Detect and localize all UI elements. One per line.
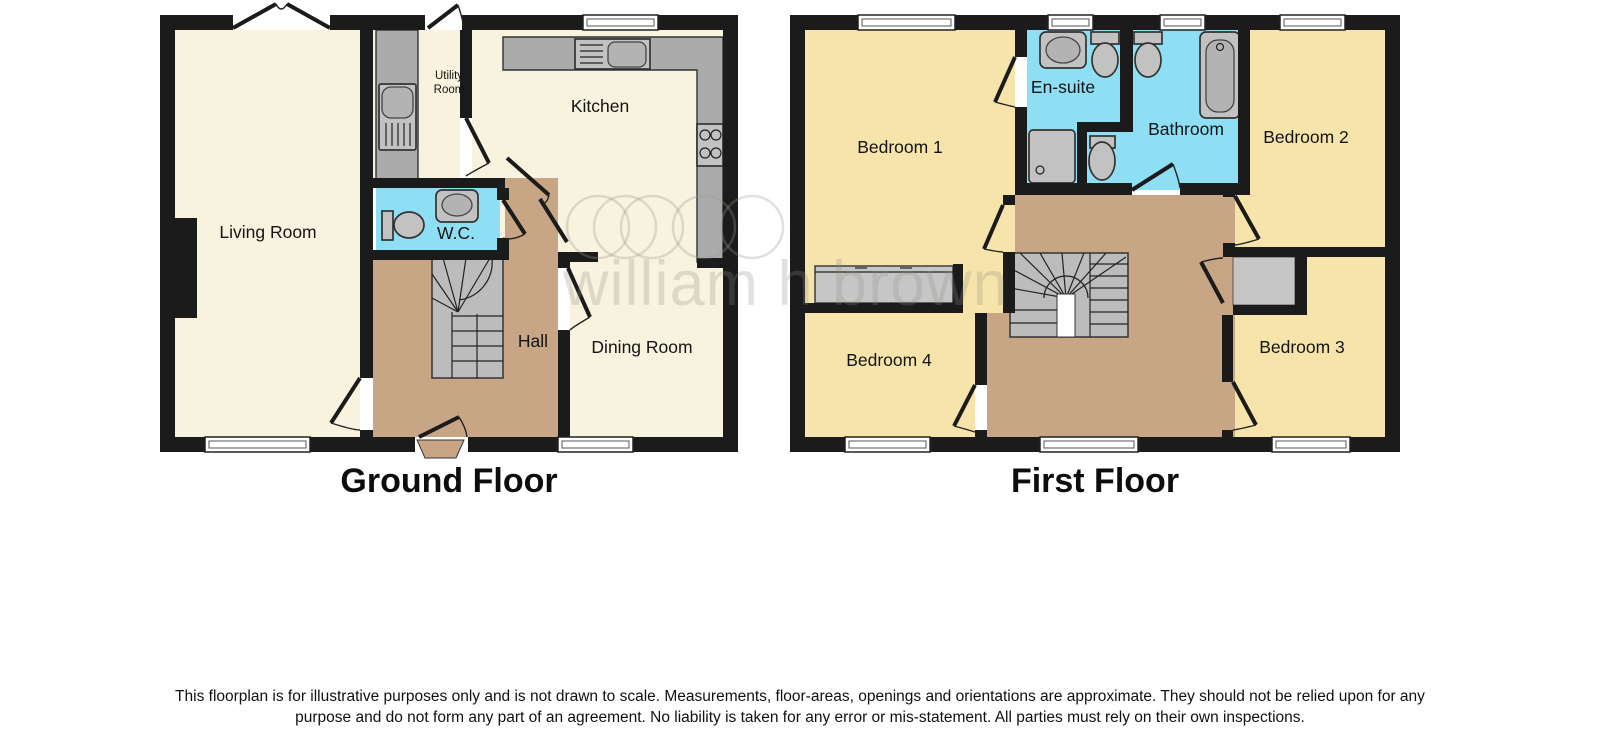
hob-fixture — [697, 124, 723, 166]
toilet-fixture — [1134, 32, 1162, 77]
label-bedroom2: Bedroom 2 — [1263, 127, 1349, 147]
basin-fixture — [1040, 32, 1086, 68]
label-hall: Hall — [518, 331, 548, 351]
label-utility-2: Room — [434, 84, 465, 96]
bathtub-fixture — [1200, 32, 1240, 118]
disclaimer-text: This floorplan is for illustrative purpo… — [0, 686, 1600, 728]
chimney-breast — [175, 218, 197, 318]
ground-floor-title: Ground Floor — [160, 462, 738, 501]
label-bathroom: Bathroom — [1148, 119, 1224, 139]
room-bedroom4 — [805, 313, 975, 437]
hall-corridor — [505, 178, 558, 262]
stairs-ground — [432, 258, 503, 378]
watermark-text: william h brown — [562, 249, 1009, 319]
label-living-room: Living Room — [219, 222, 316, 242]
basin-fixture — [436, 190, 478, 222]
disclaimer-line2: purpose and do not form any part of an a… — [295, 709, 1305, 726]
floorplan-page: william h brown Living Room Utility Room… — [0, 0, 1600, 739]
label-wc: W.C. — [437, 223, 475, 243]
cupboard — [1233, 257, 1295, 305]
stairs-first — [1010, 253, 1128, 337]
label-utility-1: Utility — [435, 70, 463, 82]
first-floor-title: First Floor — [790, 462, 1400, 501]
basin-fixture — [1089, 136, 1115, 180]
door-utility-rear — [428, 5, 464, 28]
toilet-fixture — [382, 211, 424, 240]
shower-fixture — [1029, 130, 1075, 183]
kitchen-sink-fixture — [575, 39, 650, 69]
label-bedroom3: Bedroom 3 — [1259, 337, 1345, 357]
disclaimer-line1: This floorplan is for illustrative purpo… — [175, 688, 1425, 705]
door-living-patio — [233, 4, 330, 28]
label-dining-room: Dining Room — [591, 337, 692, 357]
label-bedroom4: Bedroom 4 — [846, 350, 932, 370]
floorplan-canvas: william h brown Living Room Utility Room… — [0, 0, 1600, 739]
utility-sink-fixture — [376, 30, 418, 180]
label-ensuite: En-suite — [1031, 77, 1095, 97]
label-kitchen: Kitchen — [571, 96, 629, 116]
label-bedroom1: Bedroom 1 — [857, 137, 943, 157]
toilet-fixture — [1091, 32, 1119, 77]
